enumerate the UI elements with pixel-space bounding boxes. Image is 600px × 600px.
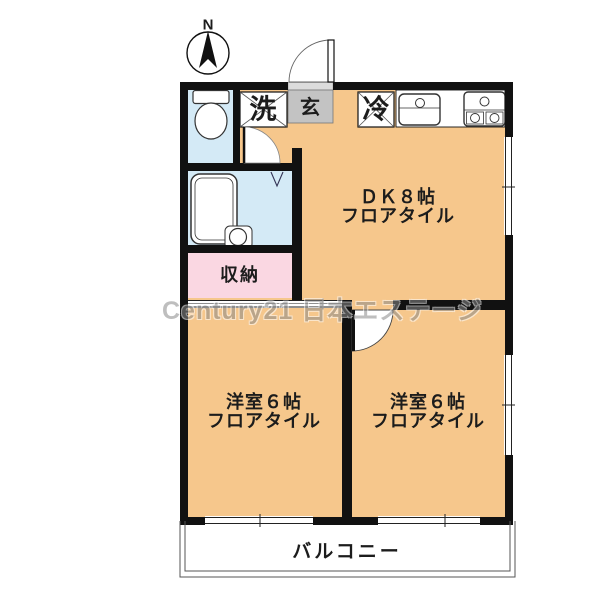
north-label: N	[203, 18, 214, 33]
wall-toilet-divider	[233, 90, 240, 163]
washer-label: 洗	[250, 97, 277, 124]
wall-bottom-center	[313, 517, 378, 525]
stove-burner	[471, 114, 480, 123]
storage-label: 収納	[220, 266, 260, 284]
room-right-label-line1: 洋室６帖	[390, 393, 466, 411]
room-left-label-line2: フロアタイル	[207, 412, 321, 430]
dk-label-line1: ＤＫ８帖	[360, 188, 436, 206]
watermark-text: Century21 日本エステージ	[162, 291, 483, 327]
washbasin-bowl	[230, 229, 247, 246]
wall-bath-bottom	[188, 245, 292, 253]
north-compass	[187, 31, 229, 74]
wall-between-bedrooms	[342, 300, 352, 517]
wall-right-middle	[505, 235, 513, 355]
room-right-label-line2: フロアタイル	[371, 412, 485, 430]
toilet-bowl	[195, 103, 227, 139]
wall-top-left	[180, 82, 288, 90]
stove-burner	[490, 114, 499, 123]
sink-faucet	[416, 99, 425, 108]
stove-grill	[480, 97, 489, 106]
wall-column-right	[292, 148, 302, 300]
fridge-label: 冷	[363, 97, 390, 124]
floor-plan: N 洗 玄 冷 ＤＫ８帖 フロアタイル 収納 洋室６帖 フロアタイル 洋室６帖 …	[0, 0, 600, 600]
wall-bottom-right	[480, 517, 513, 525]
wall-right-lower	[505, 455, 513, 525]
entrance-threshold	[288, 83, 333, 91]
dk-label-line2: フロアタイル	[341, 207, 455, 225]
room-left-label-line1: 洋室６帖	[226, 393, 302, 411]
wall-right-upper	[505, 82, 513, 137]
wall-bath-top	[188, 163, 292, 171]
entrance-door	[289, 40, 334, 82]
toilet-tank	[193, 91, 229, 104]
wall-bottom-left	[180, 517, 205, 525]
balcony-label: バルコニー	[292, 543, 402, 562]
wall-top-right	[333, 82, 513, 90]
entrance-label: 玄	[300, 98, 320, 118]
